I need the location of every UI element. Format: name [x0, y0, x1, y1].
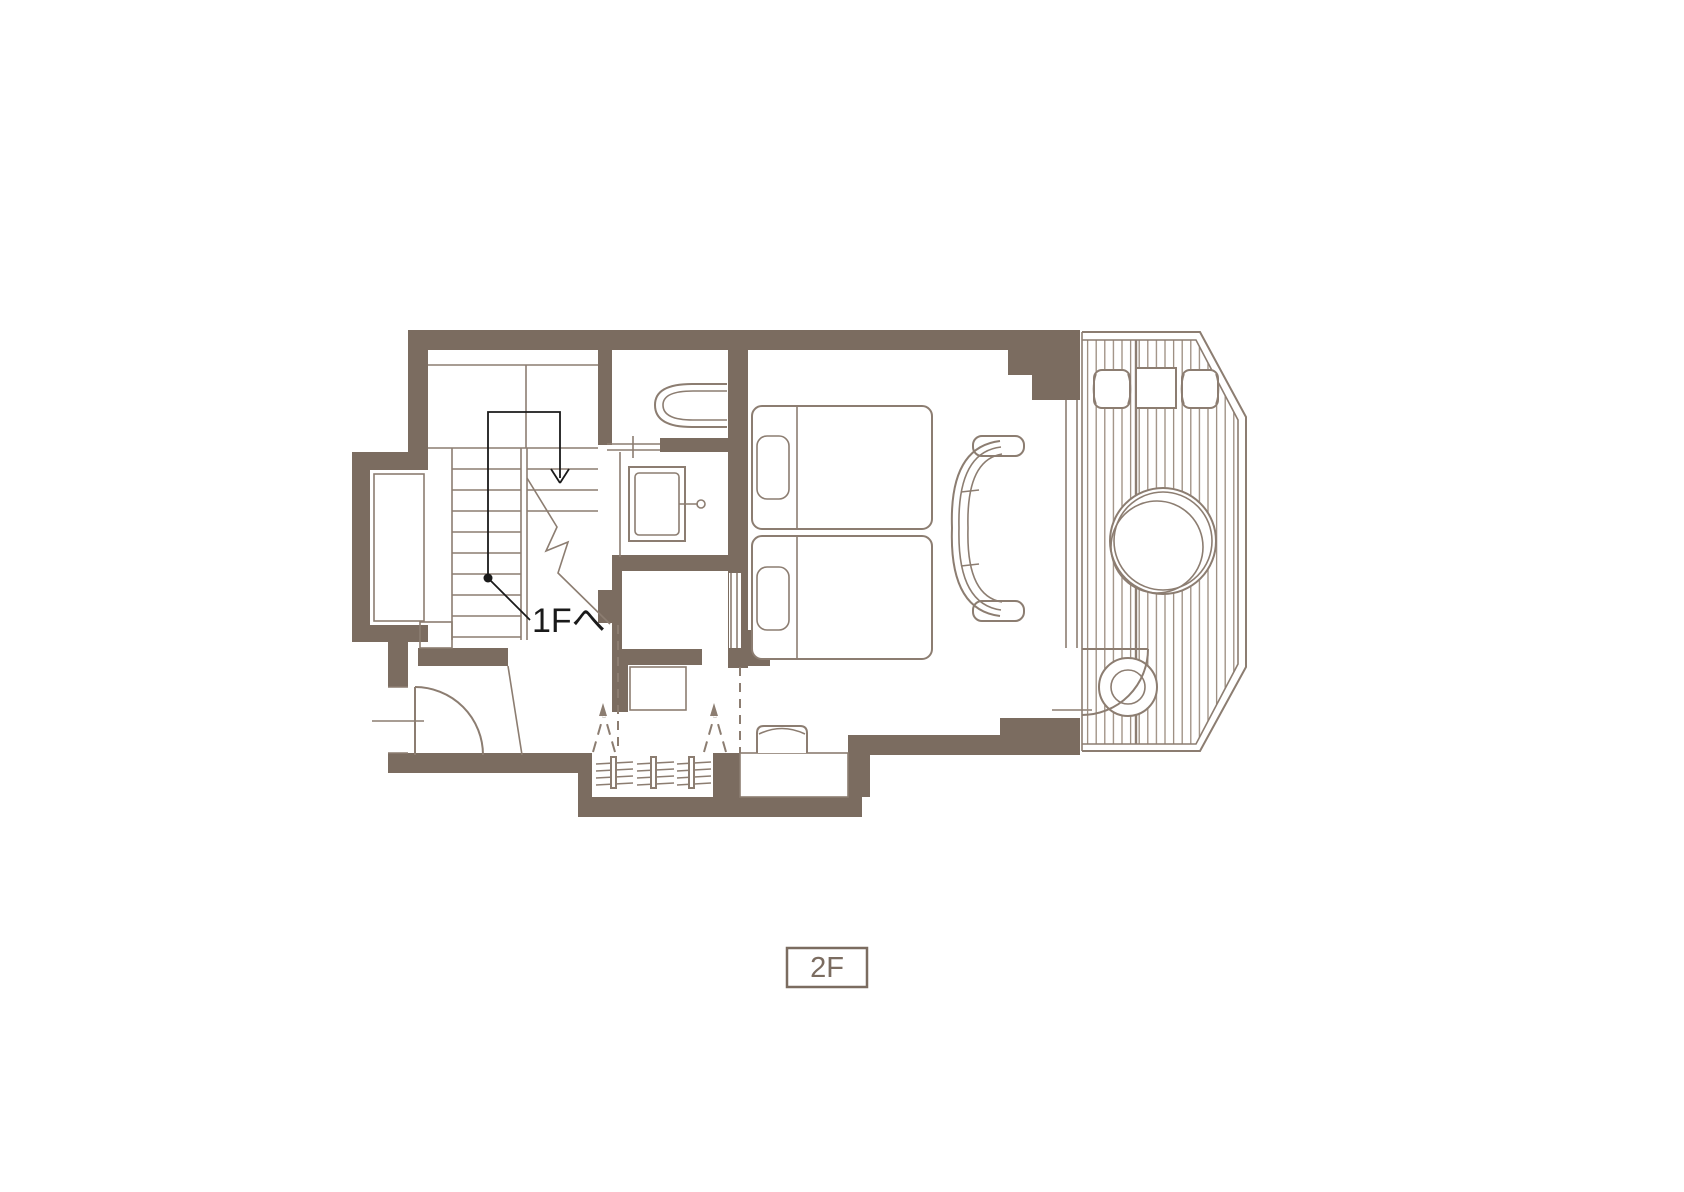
wall-bay-bottom	[352, 625, 428, 642]
closet-pier-left	[578, 753, 592, 797]
wall-bottom-bedroom	[848, 735, 1010, 755]
stair-upper-flight	[527, 469, 598, 511]
closet-pier-right	[713, 753, 740, 797]
deck-table	[1136, 368, 1176, 408]
storage-nook	[630, 667, 686, 710]
round-bath	[1110, 488, 1216, 594]
wall-bottom-step	[848, 755, 870, 797]
wall-closet-bottom	[612, 649, 702, 665]
entry-step-edge	[508, 666, 522, 755]
wall-top-right-step	[1032, 375, 1080, 400]
wall-nook-left	[612, 665, 628, 712]
sofa	[952, 436, 1024, 621]
stair-label: 1Fへ	[532, 602, 606, 640]
floor-badge: 2F	[787, 948, 867, 987]
floor-plan-page: 1Fへ	[0, 0, 1684, 1192]
wall-top	[408, 330, 1008, 350]
sofa-cushion-line-2	[961, 564, 979, 566]
bed-2	[752, 536, 932, 659]
toilet-door	[607, 436, 660, 458]
stair-treads	[452, 448, 521, 640]
wall-bottom-right-chunk	[1000, 718, 1080, 755]
wall-entry-closet	[418, 648, 508, 666]
deck-stool-1	[1094, 370, 1131, 408]
middle-closet	[630, 573, 741, 710]
wall-left-mid	[388, 642, 408, 687]
stair-label-leader	[488, 578, 530, 620]
bay-window-inset	[374, 474, 424, 621]
shelf-unit-3	[677, 757, 711, 788]
wall-bay-top	[352, 452, 428, 470]
shelf-unit-1	[596, 757, 633, 788]
wall-bay-left	[352, 470, 370, 625]
wall-toilet-bottom	[660, 438, 728, 452]
washbasin-faucet	[679, 500, 705, 508]
washroom	[620, 452, 705, 557]
sofa-back-mid	[959, 447, 1001, 610]
bifold-arrow-1	[593, 703, 615, 752]
bed-1	[752, 406, 932, 529]
counter-area	[740, 726, 848, 797]
sofa-cushion-line-1	[961, 490, 979, 492]
washbasin-icon	[629, 467, 685, 541]
sofa-seat-edge	[968, 454, 1002, 602]
stool	[757, 726, 807, 753]
floor-badge-label: 2F	[810, 952, 844, 984]
deck	[1082, 332, 1246, 751]
washbasin-inner	[635, 473, 679, 535]
wall-bottom-middle	[578, 797, 862, 817]
toilet-bowl-inner	[663, 391, 727, 420]
counter	[740, 753, 848, 797]
wall-washroom-bottom	[612, 555, 742, 571]
bifold-arrow-2	[704, 703, 726, 752]
wall-bottom-left	[388, 753, 578, 773]
floor-plan-2f: 1Fへ	[0, 0, 1684, 1192]
wall-stair-toilet	[598, 350, 612, 445]
small-tub	[1099, 658, 1157, 716]
wall-top-right-chunk	[1008, 330, 1080, 375]
entry-door-swing	[415, 687, 483, 755]
stair-route: 1Fへ	[484, 412, 606, 640]
shelf-unit-2	[637, 757, 674, 788]
wall-left-upper	[408, 330, 428, 470]
bedroom	[752, 400, 1092, 710]
closet-shelves	[596, 757, 711, 788]
deck-stool-2	[1182, 370, 1219, 408]
